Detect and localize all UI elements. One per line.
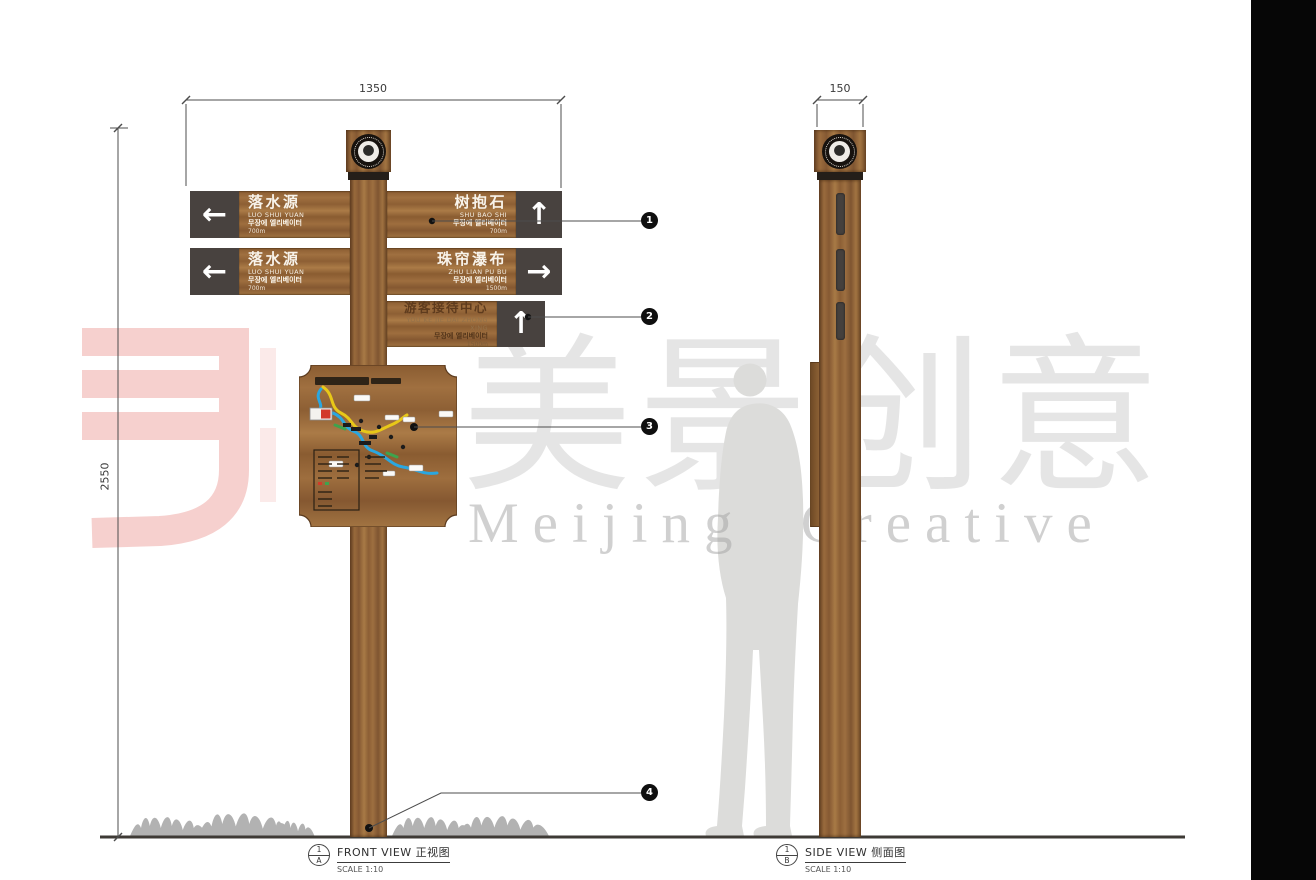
side-view-reference-bubble: 1 B	[776, 844, 798, 866]
ref-letter: A	[309, 855, 329, 866]
leader-line-1	[429, 218, 641, 224]
front-view-reference-bubble: 1 A	[308, 844, 330, 866]
drawing-canvas: 美景创意 Meijing Creative	[0, 0, 1316, 880]
dimension-overlay	[0, 0, 1316, 880]
leader-line-3	[410, 423, 641, 431]
leader-line-4	[365, 793, 641, 832]
dim-label-side-width: 150	[815, 82, 865, 95]
front-width-dimension	[182, 96, 565, 188]
callout-1: 1	[641, 212, 658, 229]
right-black-strip	[1251, 0, 1316, 880]
callout-4: 4	[641, 784, 658, 801]
side-view-title: SIDE VIEW 侧面图	[805, 844, 906, 863]
front-view-scale: SCALE 1:10	[337, 865, 450, 874]
callout-3: 3	[641, 418, 658, 435]
side-view-label-block: 1 B SIDE VIEW 侧面图 SCALE 1:10	[776, 844, 906, 874]
side-view-scale: SCALE 1:10	[805, 865, 906, 874]
front-view-title: FRONT VIEW 正视图	[337, 844, 450, 863]
dim-label-height: 2550	[99, 452, 112, 502]
front-view-label-block: 1 A FRONT VIEW 正视图 SCALE 1:10	[308, 844, 450, 874]
ref-number: 1	[777, 845, 797, 855]
callout-2: 2	[641, 308, 658, 325]
leader-line-2	[525, 314, 641, 320]
ref-number: 1	[309, 845, 329, 855]
ref-letter: B	[777, 855, 797, 866]
side-width-dimension	[813, 96, 867, 127]
dim-label-front-width: 1350	[343, 82, 403, 95]
height-dimension	[110, 124, 128, 841]
